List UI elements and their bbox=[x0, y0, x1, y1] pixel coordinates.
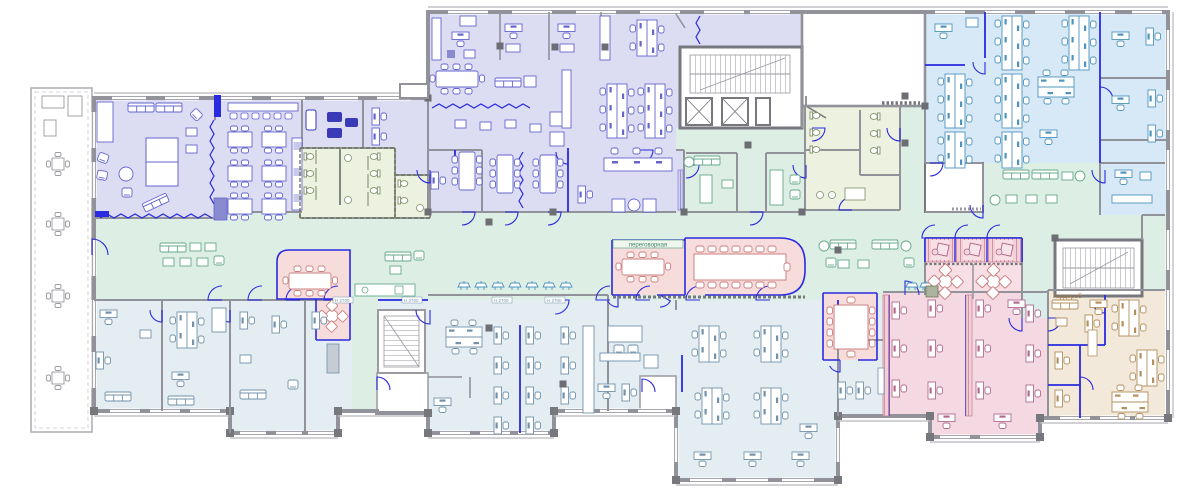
svg-text:переговорная: переговорная bbox=[629, 243, 667, 249]
svg-text:Гардероб: Гардероб bbox=[1053, 292, 1082, 300]
svg-text:H 2700: H 2700 bbox=[494, 298, 509, 303]
svg-text:H 2700: H 2700 bbox=[547, 298, 562, 303]
svg-text:H 2700: H 2700 bbox=[404, 298, 419, 303]
svg-text:H 2700: H 2700 bbox=[335, 298, 350, 303]
